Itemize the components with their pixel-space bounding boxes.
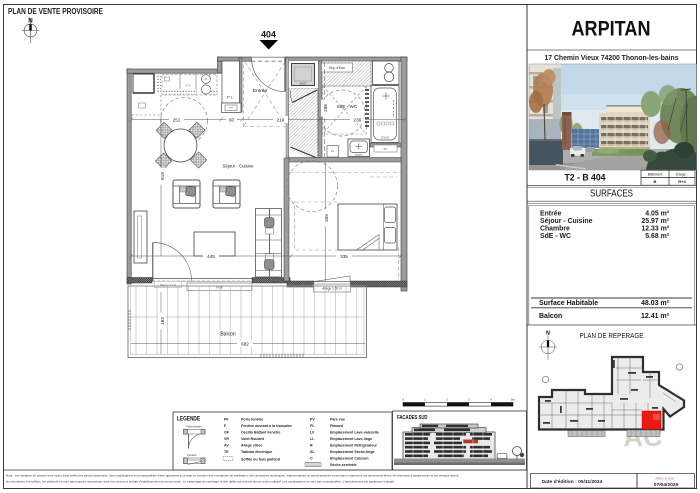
svg-text:AVST: AVST [299,82,306,86]
svg-text:Emplacement Cuisson: Emplacement Cuisson [330,457,369,461]
svg-text:PF: PF [224,418,229,422]
svg-text:PV: PV [310,418,315,422]
svg-text:PLAN DE REPERAGE: PLAN DE REPERAGE [580,333,644,340]
svg-text:Séjour - Cuisine: Séjour - Cuisine [223,164,254,169]
svg-text:Entrée: Entrée [540,211,562,218]
svg-text:359: 359 [324,214,329,222]
svg-text:AV: AV [224,444,229,448]
svg-text:TE: TE [224,450,229,454]
svg-text:R+4: R+4 [678,179,686,184]
svg-text:12.33 m²: 12.33 m² [641,226,669,233]
svg-text:Balcon: Balcon [539,313,562,320]
svg-text:48.03 m²: 48.03 m² [641,300,670,307]
svg-text:Placard: Placard [330,424,343,428]
svg-text:5m: 5m [511,398,516,402]
svg-text:Nota : Les surfaces de placard: Nota : Les surfaces de placard sont incl… [6,474,459,478]
svg-text:vasque: vasque [355,154,363,157]
svg-text:B: B [654,179,657,184]
svg-text:619: 619 [160,172,165,180]
svg-text:Emplacement Sèche-linge: Emplacement Sèche-linge [330,450,375,454]
svg-text:SdE - WC: SdE - WC [540,233,571,240]
svg-text:404: 404 [261,30,276,40]
svg-text:236: 236 [354,118,362,123]
svg-text:Mise à jour :: Mise à jour : [655,476,676,481]
svg-text:Nrg. d'Eau: Nrg. d'Eau [329,66,345,70]
svg-text:LV: LV [310,431,315,435]
svg-text:682: 682 [241,342,249,347]
svg-text:PLAN DE VENTE PROVISOIRE: PLAN DE VENTE PROVISOIRE [8,7,103,16]
svg-text:Volet Roulant: Volet Roulant [241,437,265,441]
svg-text:N: N [546,331,550,337]
svg-text:C: C [310,457,313,461]
svg-text:335: 335 [340,254,348,259]
svg-text:25.97 m²: 25.97 m² [641,218,669,225]
svg-text:PL: PL [384,147,388,151]
svg-text:Emplacement Lave-linge: Emplacement Lave-linge [330,437,372,441]
svg-text:219: 219 [277,118,285,123]
svg-text:163: 163 [160,317,165,325]
svg-text:SL: SL [310,450,315,454]
svg-text:Emplacement Réfrigérateur: Emplacement Réfrigérateur [330,444,378,448]
svg-text:LL: LL [331,149,335,153]
svg-text:288: 288 [323,104,328,112]
svg-text:Allège 1.55 m: Allège 1.55 m [322,287,342,291]
svg-text:Allège vitrée: Allège vitrée [241,444,262,448]
svg-text:Surface Habitable: Surface Habitable [539,300,598,307]
svg-text:170x80: 170x80 [381,136,390,140]
svg-text:Date d'édition : 05/11/2024: Date d'édition : 05/11/2024 [542,479,603,485]
svg-text:Entrée: Entrée [253,88,267,94]
svg-text:17 Chemin Vieux 74200 Thonon-l: 17 Chemin Vieux 74200 Thonon-les-bains [545,53,679,62]
svg-text:P L: P L [227,95,234,100]
svg-text:LEGENDE: LEGENDE [177,417,200,423]
svg-text:5.68 m²: 5.68 m² [645,233,669,240]
svg-text:60: 60 [229,118,235,123]
svg-text:T2 - B 404: T2 - B 404 [565,173,607,183]
svg-text:Tableau électrique: Tableau électrique [241,450,272,454]
svg-text:Fenêtre ouvrant à la française: Fenêtre ouvrant à la française [241,424,292,428]
svg-text:445: 445 [207,254,215,259]
svg-text:Séjour - Cuisine: Séjour - Cuisine [540,218,593,225]
svg-text:VR: VR [224,437,229,441]
svg-text:R: R [310,444,313,448]
svg-text:251: 251 [173,118,181,123]
svg-text:Fenêtre: Fenêtre [187,453,197,457]
svg-text:Balcon: Balcon [220,332,236,338]
svg-text:12.41 m²: 12.41 m² [641,313,670,320]
svg-text:07/04/2025: 07/04/2025 [654,482,679,488]
svg-text:Chambre: Chambre [540,226,570,233]
svg-text:OF: OF [224,431,230,435]
svg-text:Porte-fenêtre: Porte-fenêtre [186,425,202,429]
svg-text:SdE - WC: SdE - WC [337,104,358,109]
svg-text:PL: PL [310,424,315,428]
svg-text:Sèche-serviette: Sèche-serviette [330,463,357,467]
svg-text:les retombees, les soffites, l: les retombees, les soffites, les plafond… [6,480,395,484]
svg-text:Pare vue: Pare vue [330,418,345,422]
svg-text:4.05 m²: 4.05 m² [645,211,669,218]
svg-text:Emplacement Lave-vaisselle: Emplacement Lave-vaisselle [330,431,379,435]
svg-text:Bâtiment: Bâtiment [648,172,663,176]
svg-text:Soffite ou faux plafond: Soffite ou faux plafond [241,458,280,462]
svg-text:Oscillo Battant Fenêtre: Oscillo Battant Fenêtre [241,431,280,435]
svg-text:SURFACES: SURFACES [590,189,633,200]
svg-text:Porte fenêtre: Porte fenêtre [241,418,263,422]
svg-text:FACADES SUD: FACADES SUD [397,415,428,421]
svg-text:ARPITAN: ARPITAN [572,18,651,41]
svg-text:N: N [28,18,33,25]
svg-text:Étage :: Étage : [676,171,688,176]
